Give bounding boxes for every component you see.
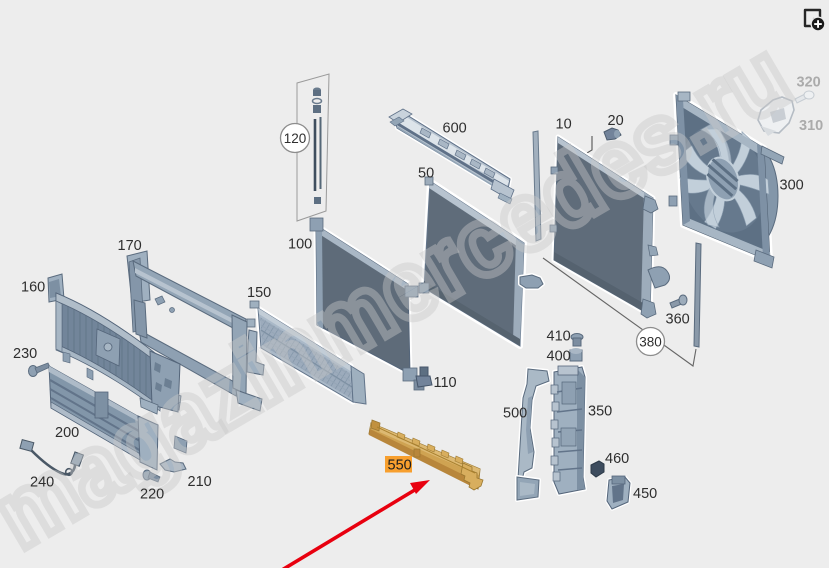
svg-text:160: 160 [21, 280, 45, 296]
svg-text:380: 380 [639, 335, 662, 350]
svg-text:100: 100 [288, 237, 312, 253]
svg-text:210: 210 [188, 474, 212, 490]
svg-text:150: 150 [247, 285, 271, 301]
svg-text:450: 450 [633, 486, 657, 502]
svg-text:500: 500 [503, 406, 527, 422]
svg-text:550: 550 [388, 458, 412, 474]
svg-text:200: 200 [55, 425, 79, 441]
svg-text:50: 50 [418, 166, 434, 182]
svg-text:120: 120 [284, 131, 307, 146]
svg-text:230: 230 [13, 346, 37, 362]
svg-text:170: 170 [118, 238, 142, 254]
svg-text:350: 350 [588, 404, 612, 420]
svg-text:320: 320 [797, 75, 821, 91]
svg-text:240: 240 [30, 475, 54, 491]
svg-text:110: 110 [434, 375, 457, 391]
svg-text:10: 10 [556, 117, 572, 133]
svg-text:360: 360 [666, 312, 690, 328]
svg-text:310: 310 [799, 118, 823, 134]
svg-text:600: 600 [443, 121, 467, 137]
svg-text:460: 460 [605, 451, 629, 467]
svg-text:220: 220 [140, 487, 164, 503]
svg-text:300: 300 [780, 178, 804, 194]
svg-text:20: 20 [608, 113, 624, 129]
svg-text:410: 410 [547, 329, 571, 345]
svg-text:400: 400 [547, 349, 571, 365]
